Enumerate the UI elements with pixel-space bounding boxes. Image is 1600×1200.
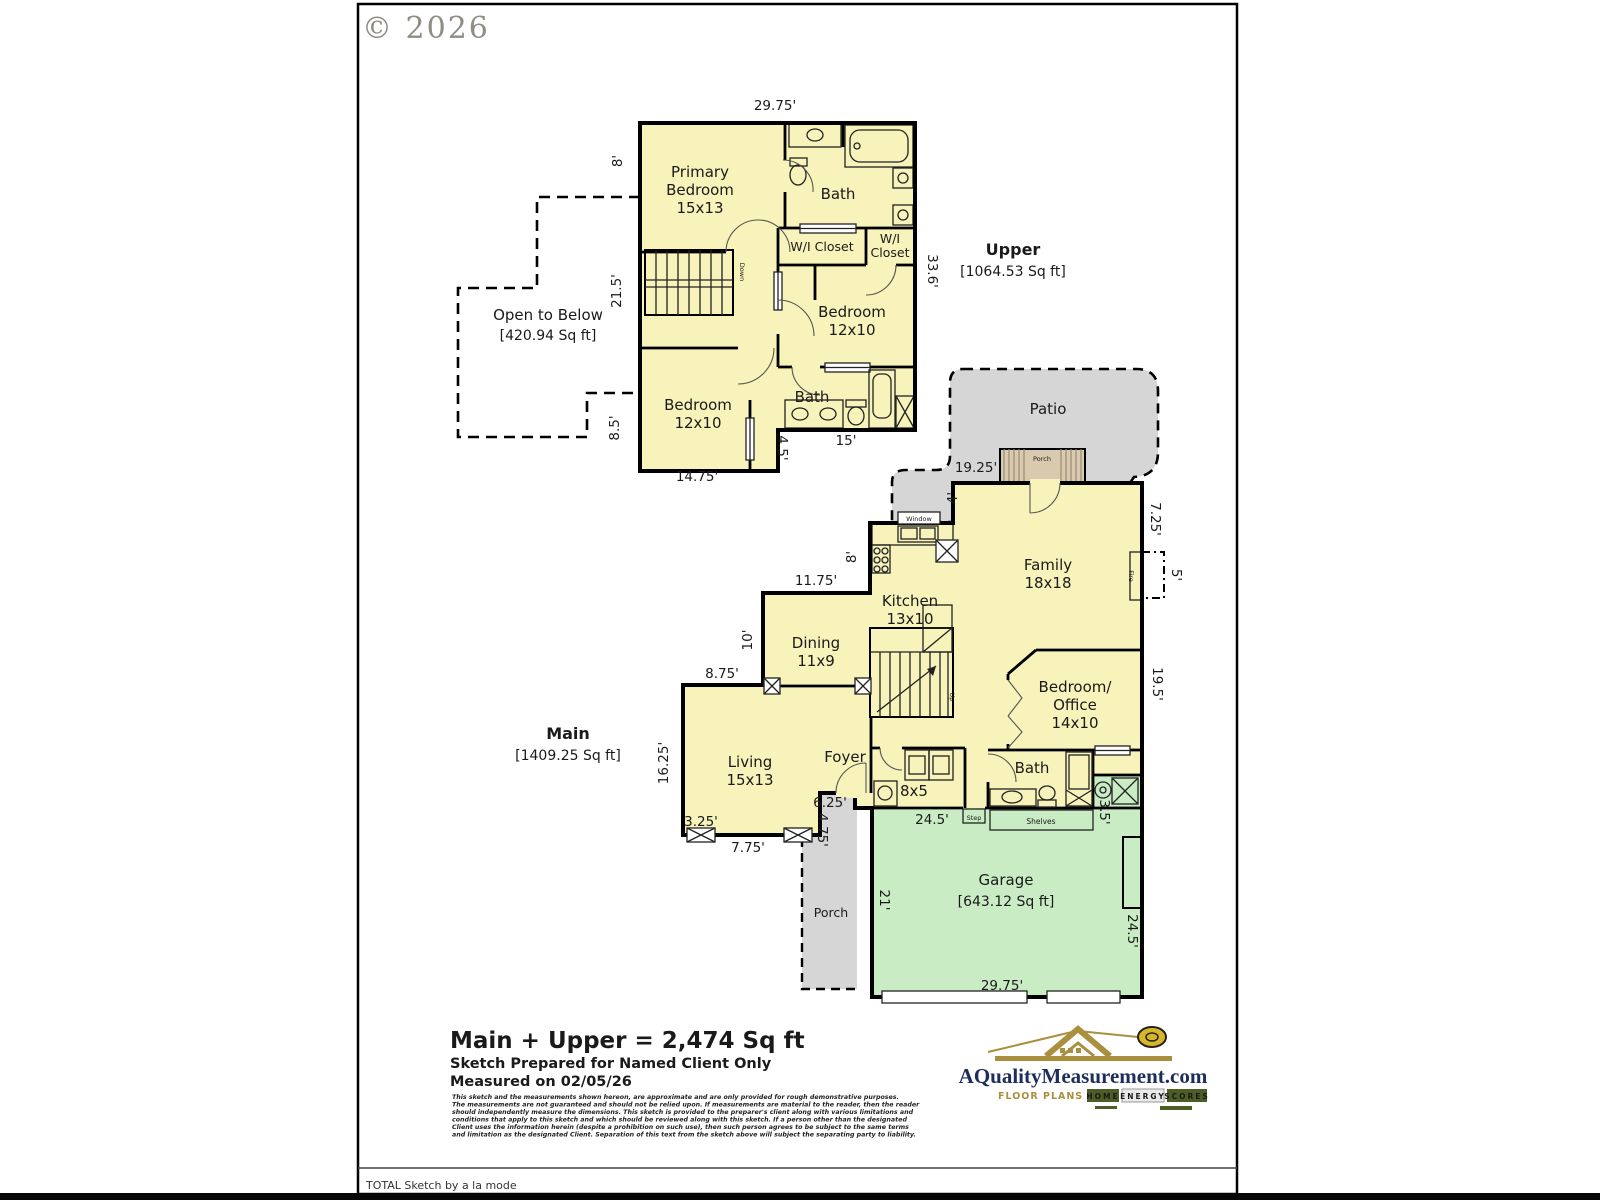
dim-label: 4.5'	[774, 435, 790, 460]
open-to-below-area: [420.94 Sq ft]	[500, 328, 597, 344]
door-opening	[1030, 479, 1060, 487]
svg-text:ENERGY: ENERGY	[1120, 1092, 1166, 1101]
disclaimer-line: conditions that apply to this sketch and…	[452, 1116, 907, 1124]
dim-label: 8'	[610, 155, 626, 167]
room-label: Living	[728, 753, 773, 771]
floor-plan-page: © 2026 Down	[0, 0, 1600, 1200]
stairs-up-label: Up	[948, 693, 956, 702]
disclaimer-line: This sketch and the measurements shown h…	[452, 1093, 899, 1101]
dim-label: 19.5'	[1149, 667, 1165, 701]
dim-label: 11.75'	[795, 573, 837, 589]
room-label: 12x10	[674, 414, 721, 432]
logo-tagline-text: FLOOR PLANS &	[998, 1091, 1097, 1102]
room-label: 13x10	[886, 610, 933, 628]
dim-label: 29.75'	[981, 978, 1023, 994]
open-to-below-label: Open to Below	[493, 306, 603, 324]
dim-label: 7.75'	[731, 840, 765, 856]
rear-porch-stoop: Porch	[1000, 449, 1085, 483]
logo-baseline	[995, 1056, 1172, 1061]
fire-label: Fire	[1127, 570, 1135, 582]
dim-label: 4.75'	[814, 813, 830, 847]
app-credit-text: TOTAL Sketch by a la mode	[365, 1179, 517, 1192]
room-label: Bath	[821, 185, 856, 203]
dim-label: 21'	[876, 890, 892, 911]
room-label: 15x13	[726, 771, 773, 789]
disclaimer-line: should independently measure the dimensi…	[452, 1108, 914, 1116]
logo-domain-text: AQualityMeasurement.com	[959, 1064, 1208, 1088]
floor-plan-canvas: © 2026 Down	[0, 0, 1600, 1200]
room-label: W/I Closet	[790, 239, 853, 254]
dim-label: 15'	[836, 433, 857, 449]
main-floor-title: Main	[546, 724, 590, 743]
dim-label: 8.5'	[607, 415, 623, 440]
dim-label: 3.25'	[684, 814, 718, 830]
room-label: Kitchen	[882, 592, 938, 610]
dim-label: 24.5'	[1124, 914, 1140, 948]
room-label: Bedroom/	[1039, 678, 1113, 696]
room-area-label: [643.12 Sq ft]	[958, 894, 1055, 910]
dim-label: 6.25'	[813, 795, 847, 811]
dim-label: 33.6'	[924, 254, 940, 288]
dim-label: 14.75'	[676, 469, 718, 485]
window-label: Window	[906, 515, 932, 523]
dim-label: 29.75'	[754, 98, 796, 114]
dim-label: 21.5'	[609, 274, 625, 308]
dim-label: 5'	[1168, 569, 1184, 581]
room-label: 12x10	[828, 321, 875, 339]
room-label: Bedroom	[666, 181, 734, 199]
copyright-watermark: © 2026	[362, 11, 490, 46]
room-label: Bedroom	[818, 303, 886, 321]
room-label: 18x18	[1024, 574, 1071, 592]
shelves-label: Shelves	[1026, 817, 1055, 826]
svg-text:HOME: HOME	[1086, 1092, 1119, 1101]
tape-measure-icon	[1138, 1027, 1166, 1047]
disclaimer-line: Client uses the information herein (desp…	[452, 1123, 909, 1131]
room-label: Dining	[792, 634, 840, 652]
prepared-for-text: Sketch Prepared for Named Client Only	[450, 1056, 772, 1072]
measured-date-text: Measured on 02/05/26	[450, 1074, 632, 1090]
svg-text:SCORES: SCORES	[1164, 1092, 1210, 1101]
room-label: Bedroom	[664, 396, 732, 414]
dim-label: 4'	[945, 492, 961, 504]
room-label: Family	[1024, 556, 1072, 574]
room-label: 14x10	[1051, 714, 1098, 732]
dim-label: 19.25'	[955, 460, 997, 476]
dim-label: 8.75'	[705, 666, 739, 682]
dim-label: 24.5'	[915, 812, 949, 828]
room-label: Garage	[979, 871, 1034, 889]
porch-label: Porch	[814, 905, 848, 920]
dim-label: 16.25'	[656, 742, 672, 784]
total-area-text: Main + Upper = 2,474 Sq ft	[450, 1028, 805, 1054]
main-floor-area: [1409.25 Sq ft]	[515, 748, 621, 764]
dim-label: 3.5'	[1096, 799, 1112, 824]
stairs-down-label: Down	[738, 263, 746, 281]
dim-label: 7.25'	[1147, 502, 1163, 536]
room-label: Primary	[671, 163, 729, 181]
room-label: Foyer	[824, 748, 866, 766]
disclaimer-line: and limitation as the designated Client.…	[452, 1131, 916, 1139]
room-label: W/I	[880, 231, 900, 246]
bottom-bar	[0, 1193, 1600, 1200]
room-label: 8x5	[900, 782, 928, 800]
room-label: 11x9	[797, 652, 835, 670]
room-label: Closet	[871, 245, 910, 260]
dim-label: 8'	[844, 551, 860, 563]
room-label: 15x13	[676, 199, 723, 217]
dim-label: 10'	[740, 630, 756, 651]
upper-floor-area: [1064.53 Sq ft]	[960, 264, 1066, 280]
room-label: Bath	[1015, 759, 1050, 777]
room-label: Bath	[795, 388, 830, 406]
porch-top-label: Porch	[1033, 455, 1051, 463]
room-label: Office	[1053, 696, 1097, 714]
garage-door-icon	[1047, 991, 1120, 1003]
disclaimer-line: The measurements are not guaranteed and …	[452, 1101, 920, 1109]
step-label: Step	[967, 814, 982, 822]
upper-floor-title: Upper	[986, 240, 1041, 259]
patio-label: Patio	[1030, 400, 1067, 418]
